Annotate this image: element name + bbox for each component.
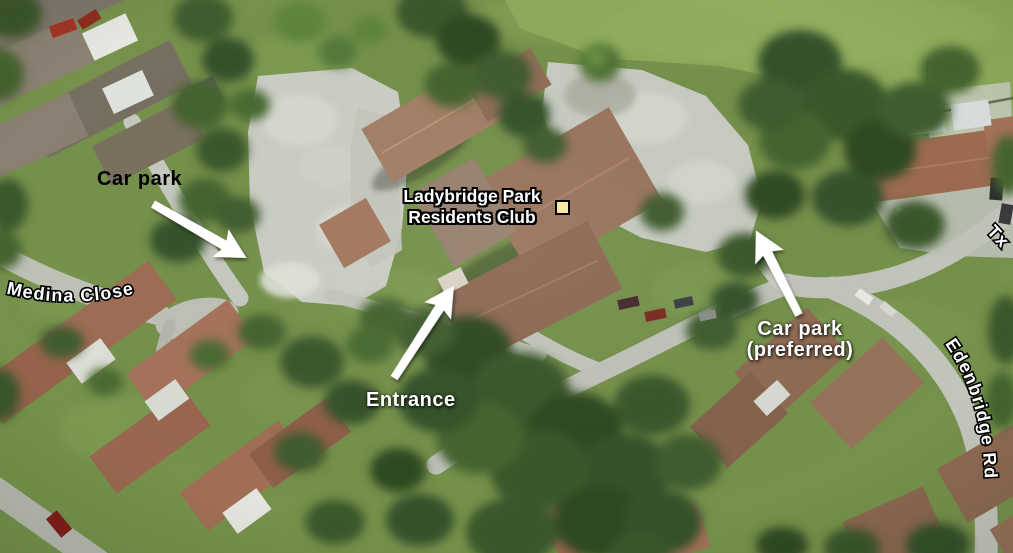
poi-label-line2: Residents Club [403, 207, 540, 228]
entrance-label: Entrance [366, 390, 456, 411]
car-park-label: Car park [97, 169, 182, 190]
aerial-map: Medina Close Edenbridge Rd Tx Car park L… [0, 0, 1013, 553]
car-park-preferred-line1: Car park [747, 319, 854, 340]
poi-label: Ladybridge Park Residents Club [403, 186, 540, 228]
photo-vignette [0, 0, 1013, 553]
car-park-preferred-label: Car park (preferred) [747, 319, 854, 361]
car-park-preferred-line2: (preferred) [747, 340, 854, 361]
aerial-photo: Medina Close Edenbridge Rd Tx [0, 0, 1013, 553]
poi-label-line1: Ladybridge Park [403, 186, 540, 207]
building-marker [555, 200, 570, 215]
